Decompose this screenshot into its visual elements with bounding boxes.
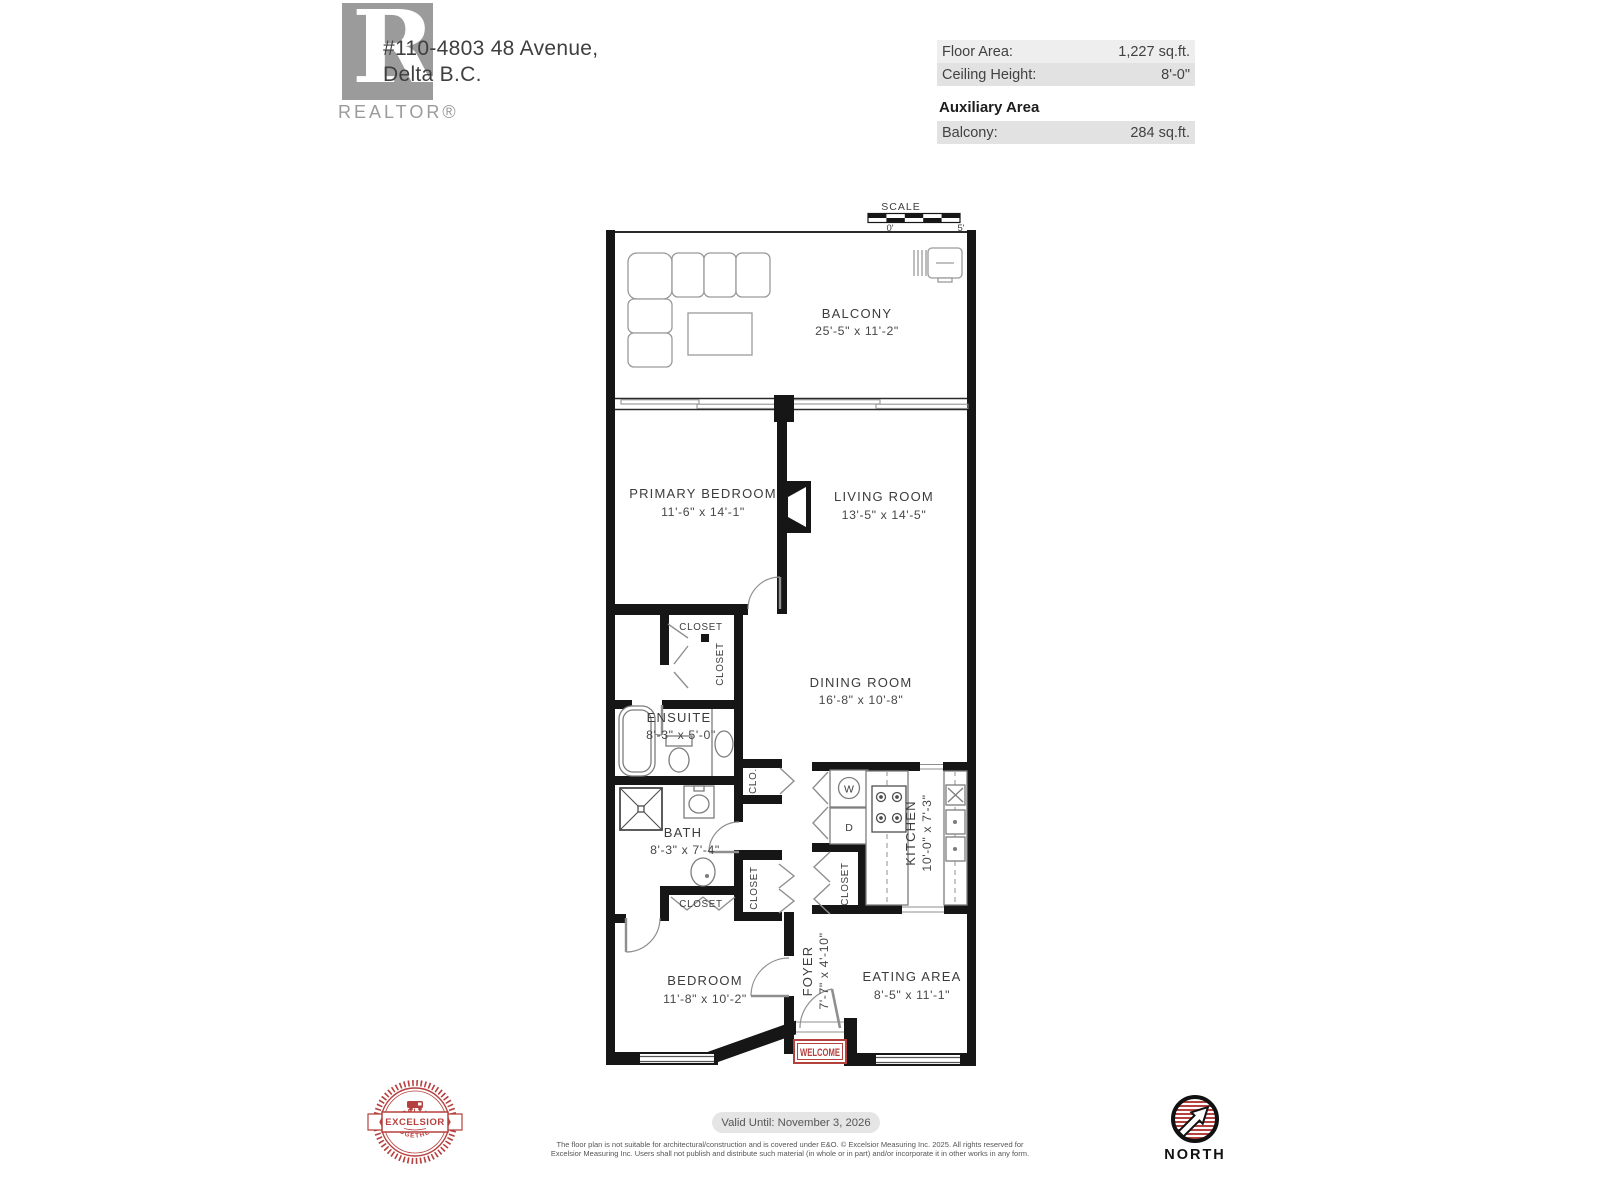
realtor-wordmark: REALTOR®: [338, 102, 459, 123]
scale-label: SCALE: [881, 201, 920, 213]
dryer-label: D: [845, 822, 853, 834]
kitchen-counter-left: [866, 771, 908, 905]
kitchen-label: KITCHEN: [903, 800, 918, 865]
closet-label: CLOSET: [679, 899, 722, 910]
coffee-table: [688, 313, 752, 355]
foyer-label: FOYER: [800, 946, 815, 997]
welcome-mat-label: WELCOME: [800, 1047, 840, 1059]
floor-plan-page: R REALTOR® #110-4803 48 Avenue, Delta B.…: [0, 0, 1600, 1200]
disclaimer-line-2: Excelsior Measuring Inc. Users shall not…: [510, 1150, 1070, 1159]
badge-banner-label: EXCELSIOR: [385, 1117, 444, 1128]
eating-area-label: EATING AREA: [863, 969, 962, 984]
living-room-dims: 13'-5" x 14'-5": [842, 508, 927, 522]
valid-until-pill: Valid Until: November 3, 2026: [712, 1112, 880, 1133]
dining-room-label: DINING ROOM: [810, 675, 913, 690]
property-address: #110-4803 48 Avenue, Delta B.C.: [383, 36, 598, 88]
closet-label: CLOSET: [749, 866, 760, 909]
ensuite-label: ENSUITE: [647, 710, 712, 725]
disclaimer: The floor plan is not suitable for archi…: [510, 1141, 1070, 1158]
bath-label: BATH: [664, 825, 703, 840]
balcony-window-wall: [615, 395, 968, 422]
closet-label: CLOSET: [715, 642, 726, 685]
kitchen-dims: 10'-0" x 7'-3": [920, 794, 934, 871]
excelsior-badge: · EXCELLING · · TOGETHER · EXCELSIOR: [360, 1067, 470, 1177]
north-arrow: NORTH: [1150, 1087, 1240, 1167]
bath-sink-vanity: [684, 786, 714, 818]
primary-bedroom-label: PRIMARY BEDROOM: [629, 486, 777, 501]
floor-plan-drawing: SCALE 0' 5': [0, 0, 1600, 1200]
closet-label: CLOSET: [679, 622, 722, 633]
clo-label: CLO.: [748, 768, 759, 794]
kitchen-counter-right: [944, 771, 967, 905]
dining-room-dims: 16'-8" x 10'-8": [819, 693, 904, 707]
bath-dims: 8'-3" x 7'-4": [650, 843, 720, 857]
north-label: NORTH: [1164, 1147, 1226, 1163]
ensuite-sink: [715, 731, 733, 757]
living-room-label: LIVING ROOM: [834, 489, 934, 504]
washer-label: W: [844, 784, 854, 796]
closet-label: CLOSET: [840, 862, 851, 905]
eating-area-dims: 8'-5" x 11'-1": [874, 988, 950, 1002]
scale-bar: SCALE 0' 5': [868, 201, 965, 234]
balcony-dims: 25'-5" x 11'-2": [815, 324, 899, 338]
welcome-mat: WELCOME: [794, 1040, 846, 1063]
stove: [872, 786, 906, 832]
primary-bedroom-dims: 11'-6" x 14'-1": [661, 505, 745, 519]
shower: [620, 788, 662, 830]
balcony-furniture: [628, 248, 962, 367]
balcony-label: BALCONY: [822, 306, 893, 321]
window-post: [774, 395, 794, 422]
address-line-2: Delta B.C.: [383, 62, 598, 88]
address-line-1: #110-4803 48 Avenue,: [383, 36, 598, 62]
bedroom-dims: 11'-8" x 10'-2": [663, 992, 747, 1006]
kitchen-sink: [946, 785, 965, 805]
bedroom-label: BEDROOM: [667, 973, 743, 988]
badge-ribbon: EXCELSIOR: [368, 1112, 462, 1132]
bbq-grill: [914, 248, 962, 282]
bath-toilet: [691, 858, 715, 886]
ensuite-dims: 8'-3" x 5'-0": [646, 728, 716, 742]
foyer-dims: 7'-7" x 4'-10": [817, 932, 831, 1009]
